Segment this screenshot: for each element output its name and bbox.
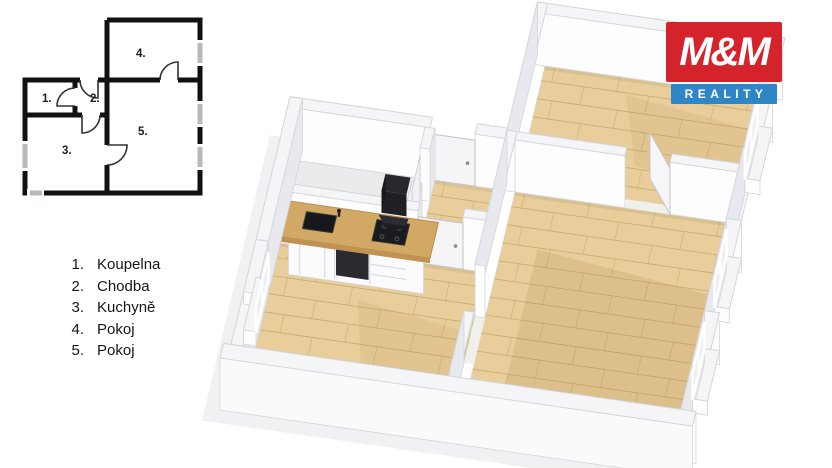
brand-logo-mark: M&M [666,22,782,82]
burner [380,235,384,239]
door-leaf-entrance [430,134,475,187]
sink [303,212,337,233]
brand-logo: M&M REALITY [666,22,782,104]
brand-logo-tagline: REALITY [671,84,777,104]
real-estate-floorplan-graphic: 1. 2. 3. 4. 5. 1.Koupelna 2.Chodba 3.Kuc… [0,0,832,468]
burner [395,237,399,241]
oven-cavity [336,249,369,280]
